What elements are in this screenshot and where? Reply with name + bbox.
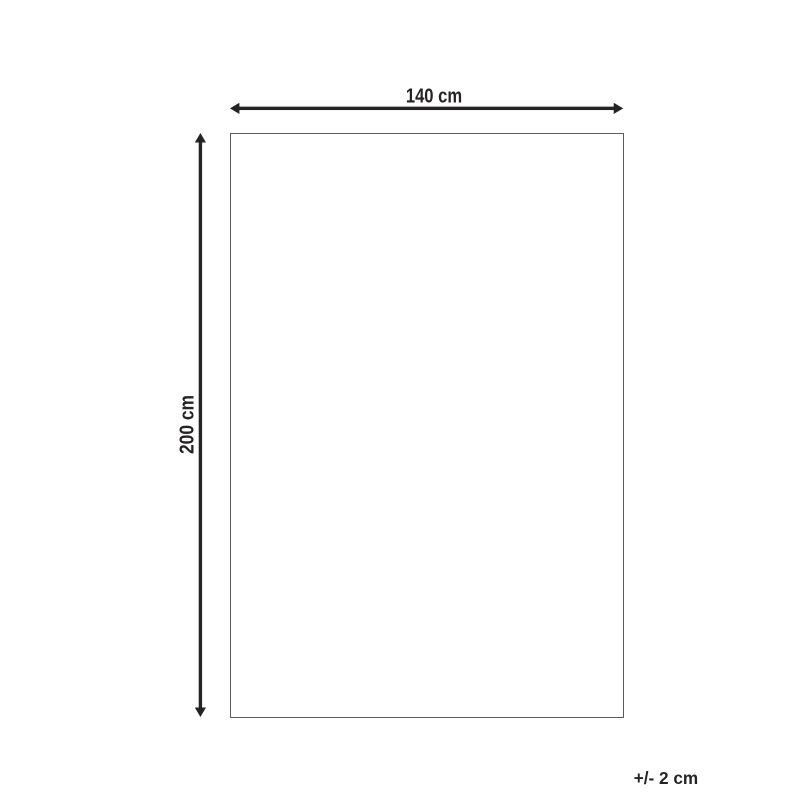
- svg-text:140 cm: 140 cm: [406, 85, 462, 108]
- svg-text:200 cm: 200 cm: [175, 395, 198, 454]
- svg-text:+/- 2 cm: +/- 2 cm: [634, 768, 699, 788]
